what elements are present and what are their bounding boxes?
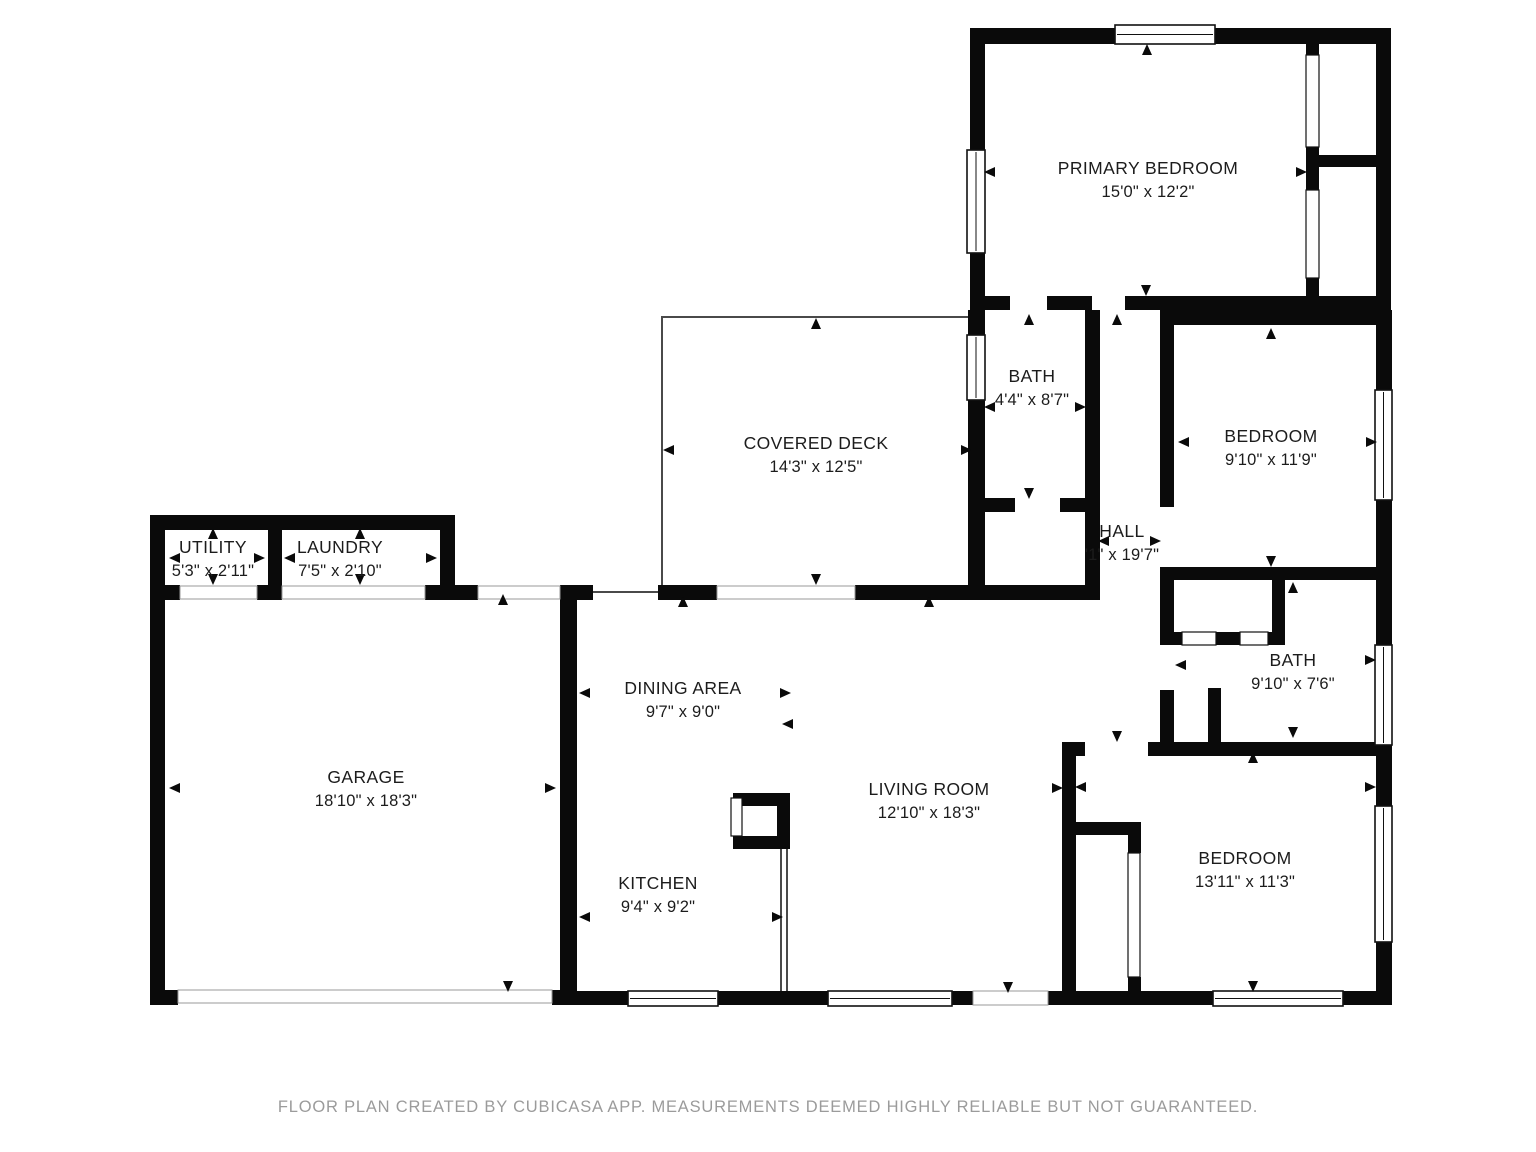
dimension-arrow bbox=[1142, 44, 1152, 55]
room-label-covered-deck: COVERED DECK 14'3" x 12'5" bbox=[744, 432, 889, 478]
room-dimensions: 9'4" x 9'2" bbox=[618, 896, 698, 918]
wall-segment bbox=[733, 836, 790, 849]
dimension-arrow bbox=[1178, 437, 1189, 447]
dimension-arrow bbox=[1288, 727, 1298, 738]
room-label-utility: UTILITY 5'3" x 2'11" bbox=[172, 536, 255, 582]
wall-segment bbox=[1306, 147, 1319, 190]
wall-segment bbox=[1343, 991, 1391, 1005]
footer-disclaimer: FLOOR PLAN CREATED BY CUBICASA APP. MEAS… bbox=[0, 1098, 1536, 1117]
dimension-arrow bbox=[782, 719, 793, 729]
wall-segment bbox=[150, 515, 455, 530]
wall-segment bbox=[1174, 632, 1182, 645]
door-opening bbox=[717, 586, 855, 599]
wall-segment bbox=[1128, 822, 1141, 853]
room-label-kitchen: KITCHEN 9'4" x 9'2" bbox=[618, 872, 698, 918]
room-dimensions: 5'3" x 2'11" bbox=[172, 560, 255, 582]
wall-segment bbox=[1125, 296, 1391, 310]
room-name: PRIMARY BEDROOM bbox=[1058, 157, 1238, 181]
wall-segment bbox=[1160, 567, 1391, 580]
room-dimensions: 4'4" x 8'7" bbox=[995, 389, 1069, 411]
room-label-garage: GARAGE 18'10" x 18'3" bbox=[315, 766, 417, 812]
wall-segment bbox=[968, 310, 985, 335]
wall-segment bbox=[658, 585, 717, 600]
wall-segment bbox=[1319, 155, 1376, 167]
dimension-arrow bbox=[780, 688, 791, 698]
wall-segment bbox=[1047, 296, 1092, 310]
wall-segment bbox=[1160, 310, 1174, 507]
dimension-arrow bbox=[579, 912, 590, 922]
room-name: BATH bbox=[1251, 649, 1335, 673]
room-label-laundry: LAUNDRY 7'5" x 2'10" bbox=[297, 536, 383, 582]
closet-door-panel bbox=[1306, 55, 1319, 147]
dimension-arrow bbox=[1266, 328, 1276, 339]
wall-segment bbox=[968, 400, 985, 595]
door-opening bbox=[180, 586, 257, 599]
room-label-dining-area: DINING AREA 9'7" x 9'0" bbox=[624, 677, 741, 723]
dimension-arrow bbox=[1052, 783, 1063, 793]
wall-segment bbox=[1306, 278, 1319, 296]
room-name: LAUNDRY bbox=[297, 536, 383, 560]
wall-segment bbox=[425, 585, 478, 600]
room-label-primary-bedroom: PRIMARY BEDROOM 15'0" x 12'2" bbox=[1058, 157, 1238, 203]
wall-segment bbox=[1060, 498, 1085, 512]
wall-segment bbox=[560, 593, 577, 1005]
closet-door-panel bbox=[731, 798, 742, 836]
wall-segment bbox=[1062, 742, 1076, 1005]
dimension-arrow bbox=[1112, 314, 1122, 325]
room-name: GARAGE bbox=[315, 766, 417, 790]
room-dimensions: 9'10" x 11'9" bbox=[1224, 449, 1317, 471]
door-opening bbox=[282, 586, 425, 599]
room-name: KITCHEN bbox=[618, 872, 698, 896]
dimension-arrow bbox=[579, 688, 590, 698]
dimension-arrow bbox=[1266, 556, 1276, 567]
dimension-arrow bbox=[169, 783, 180, 793]
wall-segment bbox=[718, 991, 828, 1005]
wall-segment bbox=[1268, 632, 1285, 645]
room-dimensions: 15'0" x 12'2" bbox=[1058, 181, 1238, 203]
closet-door-panel bbox=[1182, 632, 1216, 645]
dimension-arrow bbox=[1288, 582, 1298, 593]
dimension-arrow bbox=[1024, 314, 1034, 325]
wall-segment bbox=[440, 515, 455, 585]
room-dimensions: 14'3" x 12'5" bbox=[744, 456, 889, 478]
wall-segment bbox=[577, 991, 628, 1005]
wall-segment bbox=[1216, 632, 1240, 645]
room-label-hall: HALL '1" x 19'7" bbox=[1085, 520, 1159, 566]
floor-plan: PRIMARY BEDROOM 15'0" x 12'2" BATH 4'4" … bbox=[0, 0, 1536, 1152]
dimension-arrow bbox=[1365, 782, 1376, 792]
room-dimensions: 13'11" x 11'3" bbox=[1195, 871, 1295, 893]
dimension-arrow bbox=[811, 574, 821, 585]
room-dimensions: 12'10" x 18'3" bbox=[868, 802, 989, 824]
room-name: COVERED DECK bbox=[744, 432, 889, 456]
door-opening bbox=[973, 991, 1048, 1005]
room-dimensions: '1" x 19'7" bbox=[1085, 544, 1159, 566]
wall-segment bbox=[1376, 44, 1391, 310]
wall-segment bbox=[1048, 991, 1076, 1005]
dimension-arrow bbox=[254, 553, 265, 563]
room-label-bath-right: BATH 9'10" x 7'6" bbox=[1251, 649, 1335, 695]
closet-door-panel bbox=[1306, 190, 1319, 278]
dimension-arrow bbox=[811, 318, 821, 329]
door-opening bbox=[478, 586, 560, 599]
dimension-arrow bbox=[1296, 167, 1307, 177]
wall-segment bbox=[1174, 310, 1391, 325]
wall-segment bbox=[1272, 580, 1285, 632]
dimension-arrow bbox=[1175, 660, 1186, 670]
room-label-living-room: LIVING ROOM 12'10" x 18'3" bbox=[868, 778, 989, 824]
dimension-arrow bbox=[984, 402, 995, 412]
wall-segment bbox=[268, 530, 282, 585]
room-label-bath-top: BATH 4'4" x 8'7" bbox=[995, 365, 1069, 411]
dimension-arrow bbox=[284, 553, 295, 563]
room-name: HALL bbox=[1085, 520, 1159, 544]
dimension-arrow bbox=[663, 445, 674, 455]
dimension-arrow bbox=[1141, 285, 1151, 296]
room-dimensions: 7'5" x 2'10" bbox=[297, 560, 383, 582]
room-name: BATH bbox=[995, 365, 1069, 389]
dimension-arrow bbox=[545, 783, 556, 793]
door-opening bbox=[178, 990, 552, 1003]
wall-segment bbox=[985, 498, 1015, 512]
dimension-arrow bbox=[1112, 731, 1122, 742]
wall-segment bbox=[257, 585, 282, 600]
room-dimensions: 18'10" x 18'3" bbox=[315, 790, 417, 812]
wall-segment bbox=[552, 990, 577, 1005]
dimension-arrow bbox=[1075, 402, 1086, 412]
room-label-bedroom-top-right: BEDROOM 9'10" x 11'9" bbox=[1224, 425, 1317, 471]
wall-segment bbox=[1076, 991, 1213, 1005]
room-dimensions: 9'10" x 7'6" bbox=[1251, 673, 1335, 695]
wall-segment bbox=[970, 296, 1010, 310]
room-name: UTILITY bbox=[172, 536, 255, 560]
wall-segment bbox=[150, 990, 178, 1005]
room-label-bedroom-bottom-right: BEDROOM 13'11" x 11'3" bbox=[1195, 847, 1295, 893]
room-name: LIVING ROOM bbox=[868, 778, 989, 802]
closet-door-panel bbox=[1128, 853, 1140, 977]
dimension-arrow bbox=[426, 553, 437, 563]
wall-segment bbox=[1148, 742, 1391, 756]
wall-segment bbox=[952, 991, 973, 1005]
room-dimensions: 9'7" x 9'0" bbox=[624, 701, 741, 723]
dimension-arrow bbox=[1024, 488, 1034, 499]
room-name: DINING AREA bbox=[624, 677, 741, 701]
wall-segment bbox=[855, 585, 1085, 600]
room-name: BEDROOM bbox=[1224, 425, 1317, 449]
wall-segment bbox=[150, 515, 165, 1005]
closet-door-panel bbox=[1240, 632, 1268, 645]
room-name: BEDROOM bbox=[1195, 847, 1295, 871]
wall-segment bbox=[1306, 44, 1319, 55]
dimension-arrow bbox=[1075, 782, 1086, 792]
